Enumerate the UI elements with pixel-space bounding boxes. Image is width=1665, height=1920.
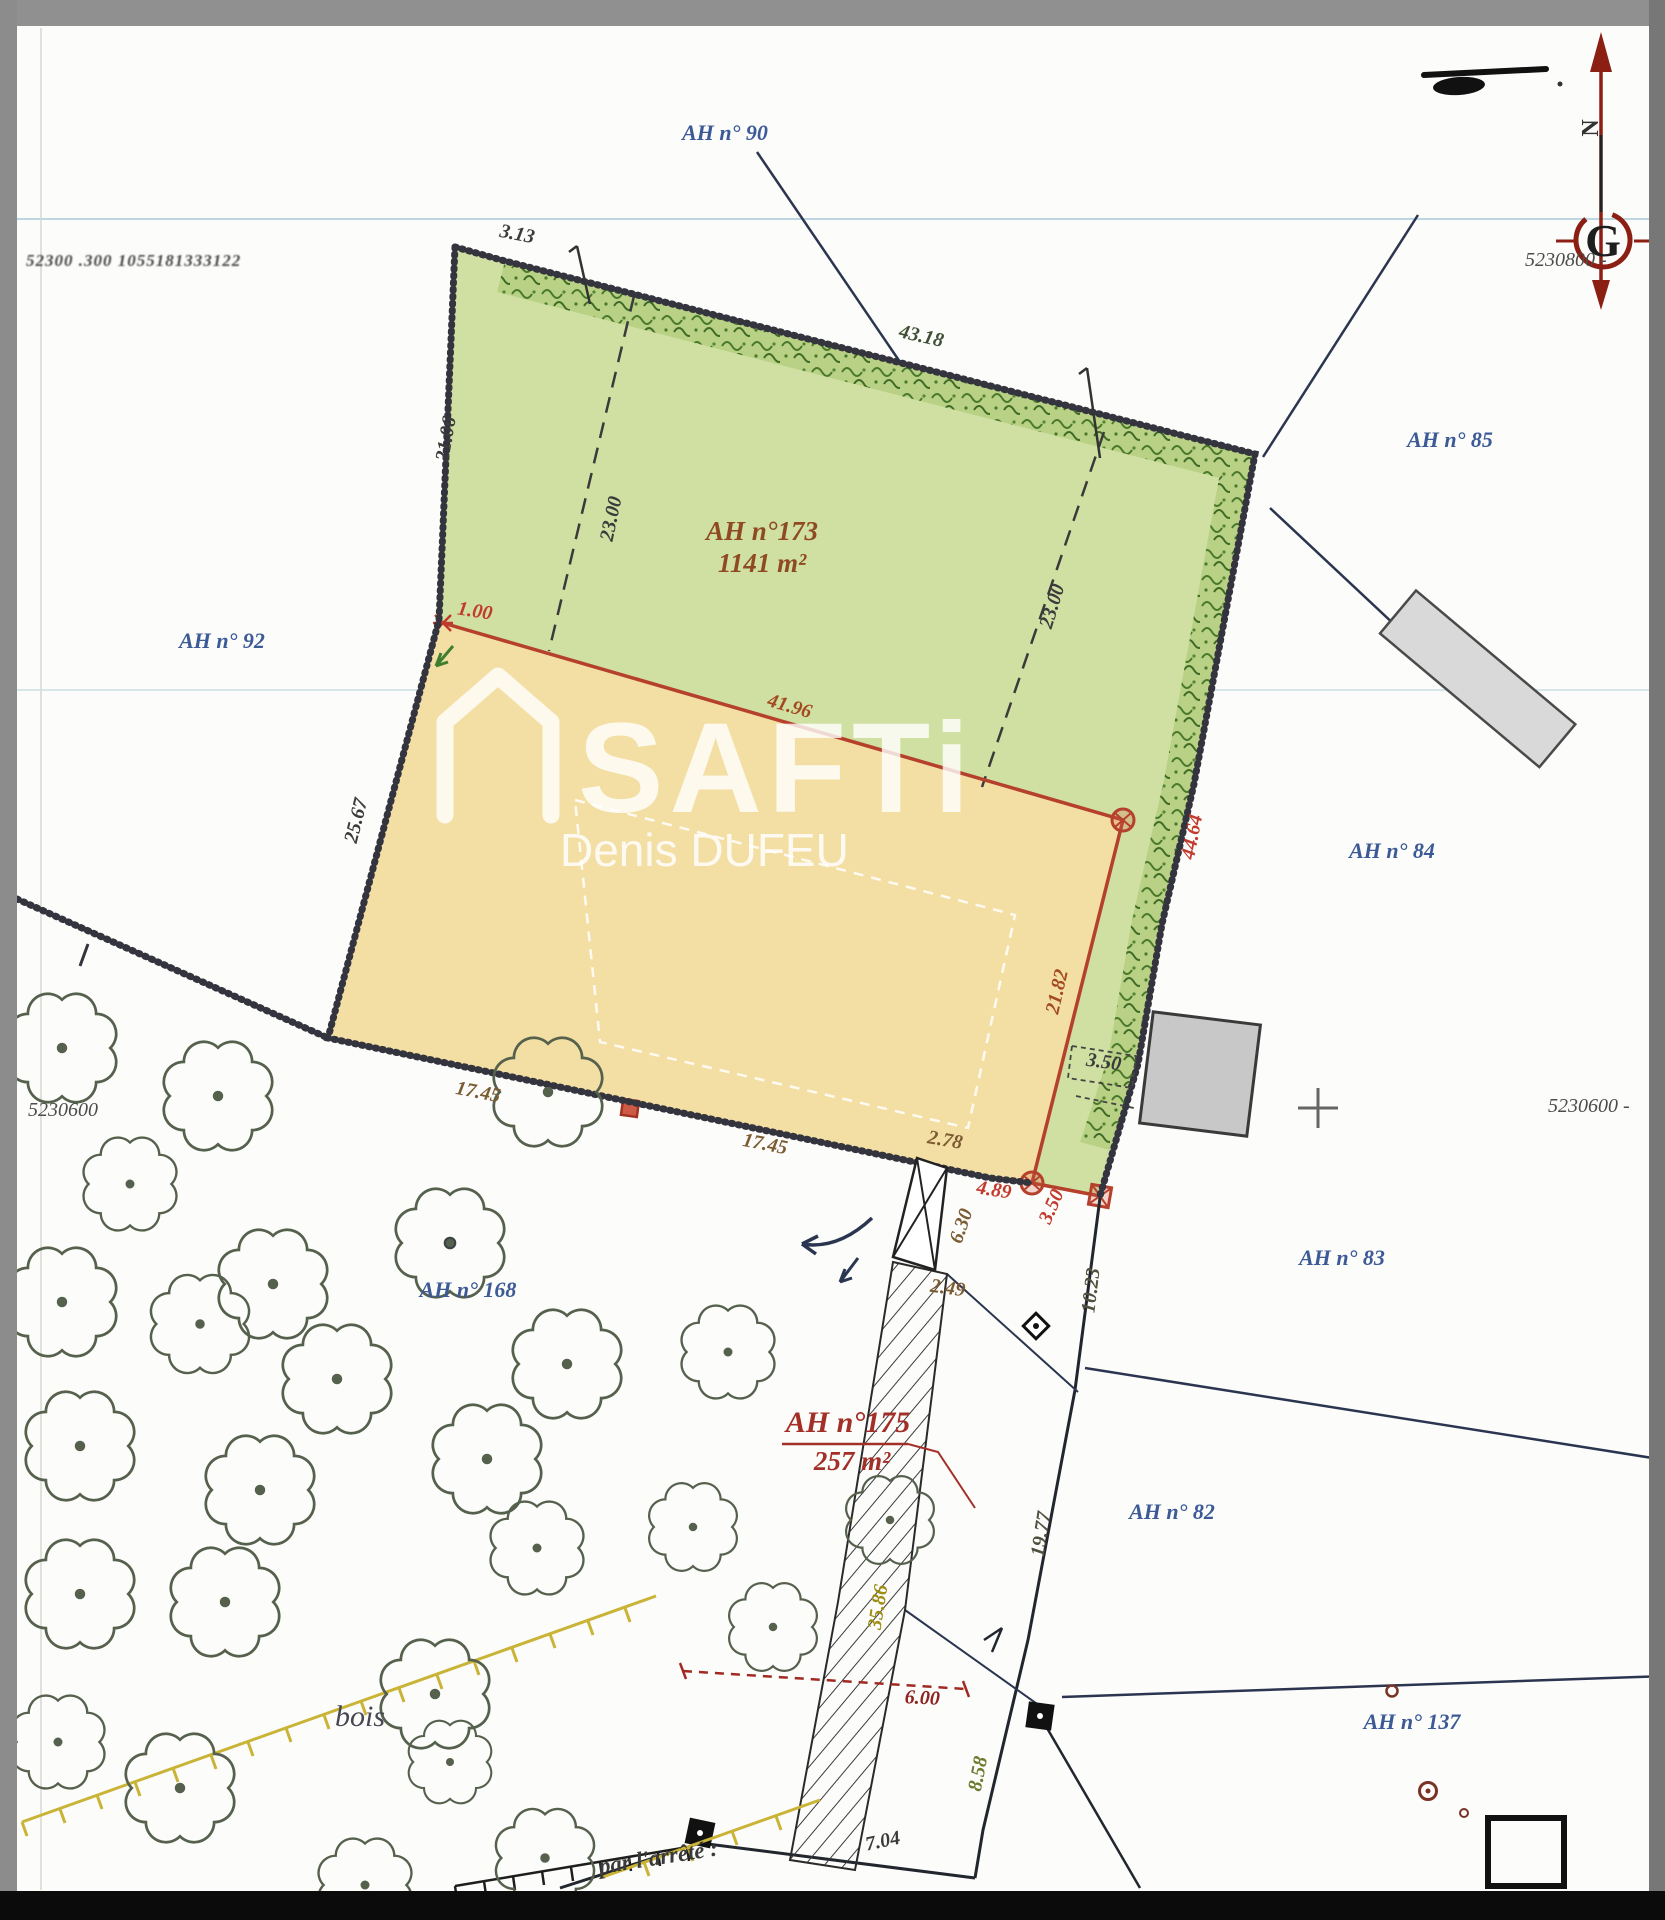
neighbor-parcel-label: AH n° 82 (1127, 1499, 1215, 1524)
parcel-175-area: 257 m² (813, 1446, 891, 1476)
neighbor-parcel-label: AH n° 92 (177, 628, 265, 653)
neighbor-building-east (1140, 1012, 1261, 1136)
red-survey-marker-east (1112, 809, 1134, 831)
plan-svg: N G 52300 .300 1055181333122 5230800 - 5… (0, 0, 1665, 1920)
coord-top-right: 5230800 - (1525, 249, 1607, 271)
parcel-173-area: 1141 m² (718, 548, 807, 578)
neighbor-parcel-label: AH n° 84 (1347, 838, 1435, 863)
neighbor-parcel-label: AH n° 90 (680, 120, 768, 145)
bois-label: bois (335, 1700, 385, 1733)
watermark-agent: Denis DUFEU (560, 824, 849, 876)
north-letter: N (1578, 119, 1604, 137)
parcel-175-id: AH n°175 (784, 1406, 911, 1439)
parcel-173-id: AH n°173 (704, 516, 818, 546)
neighbor-parcel-label: AH n° 137 (1362, 1709, 1462, 1734)
coord-bottom-left: 5230600 (28, 1099, 98, 1121)
cadastral-plan-page: N G 52300 .300 1055181333122 5230800 - 5… (0, 0, 1665, 1920)
coord-top-left: 52300 .300 1055181333122 (26, 251, 241, 270)
dimension-label: 6.00 (904, 1686, 940, 1710)
coord-bottom-right: 5230600 - (1548, 1095, 1630, 1117)
neighbor-parcel-label: AH n° 85 (1405, 427, 1493, 452)
neighbor-parcel-label: AH n° 168 (418, 1277, 517, 1302)
watermark-brand: SAFTi (578, 697, 975, 840)
neighbor-parcel-label: AH n° 83 (1297, 1245, 1385, 1270)
